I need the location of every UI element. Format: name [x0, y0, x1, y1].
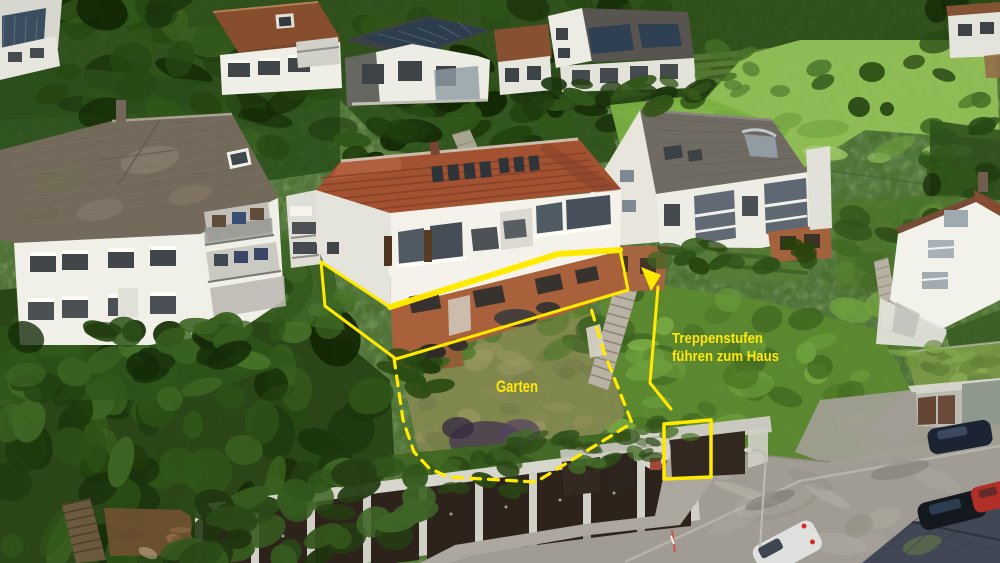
svg-text:führen zum Haus: führen zum Haus: [672, 348, 779, 365]
svg-text:Garten: Garten: [496, 377, 538, 396]
svg-text:Treppenstufen: Treppenstufen: [672, 330, 763, 347]
